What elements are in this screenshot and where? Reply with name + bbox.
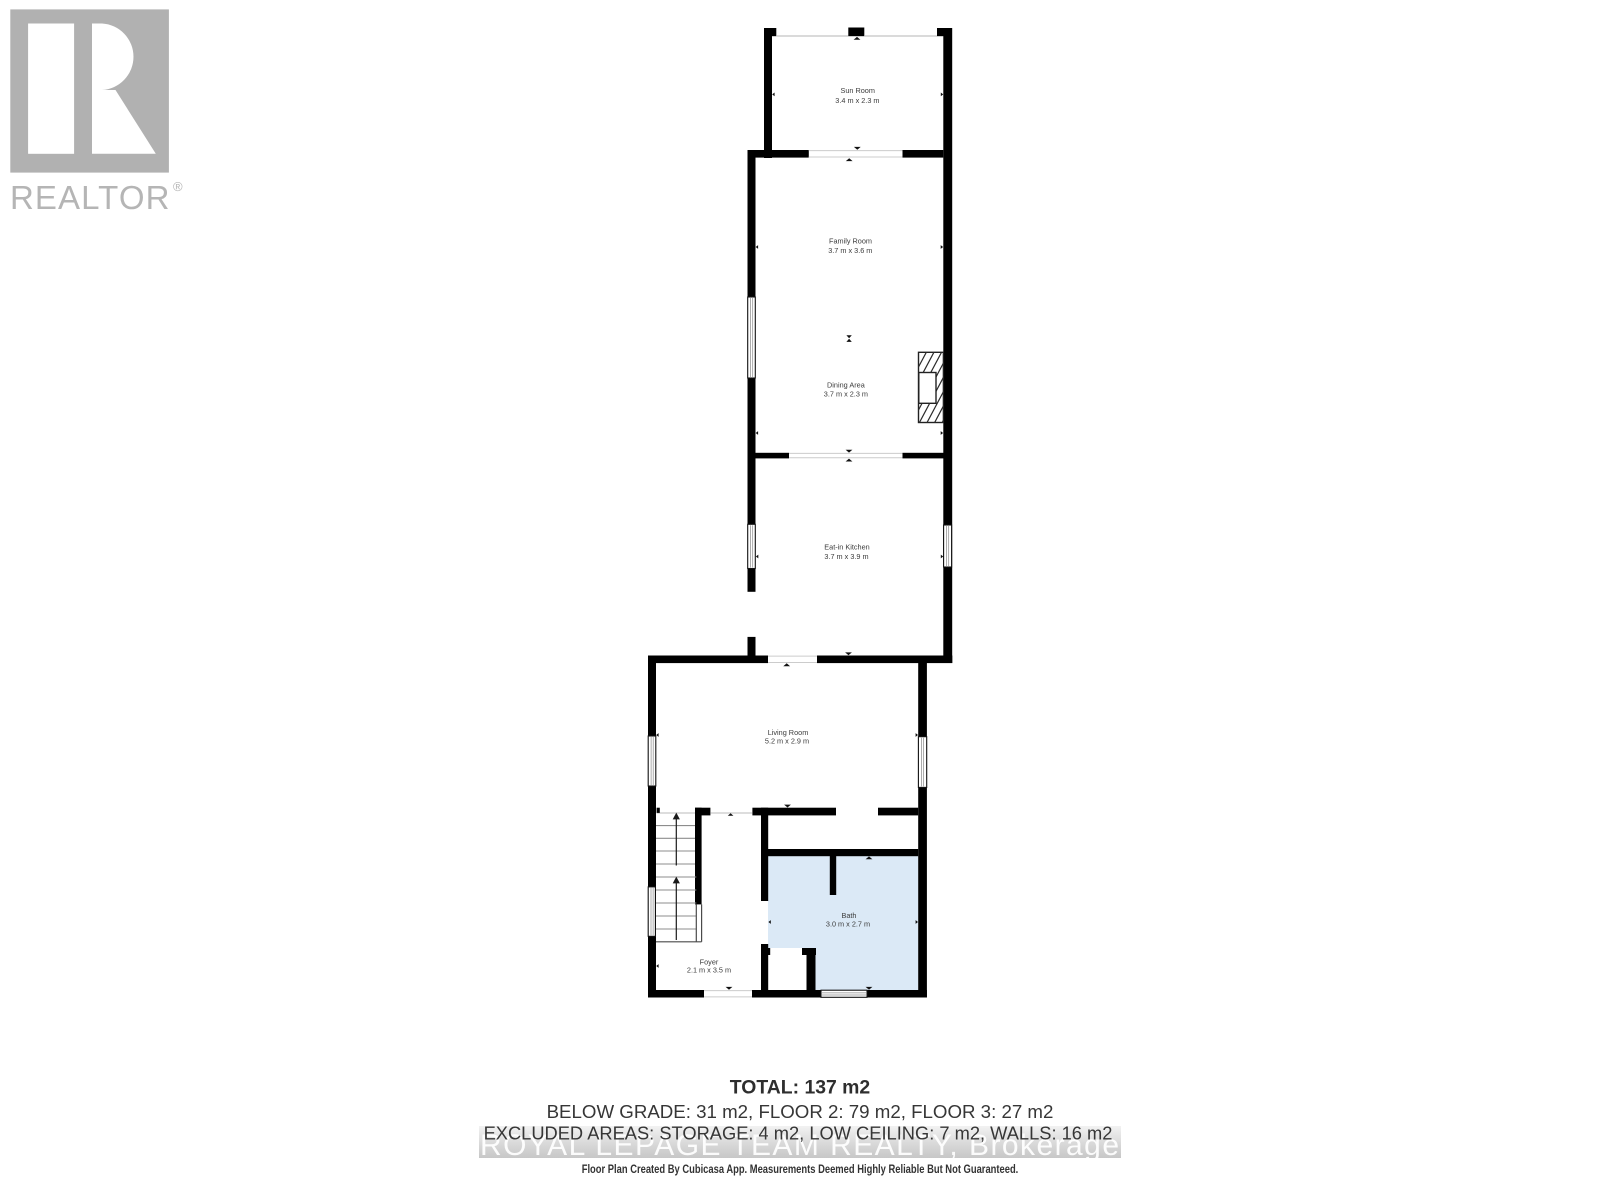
svg-text:2.1 m x 3.5 m: 2.1 m x 3.5 m	[687, 966, 731, 975]
svg-text:Sun Room: Sun Room	[840, 86, 874, 95]
svg-text:EXCLUDED AREAS: STORAGE: 4 m2,: EXCLUDED AREAS: STORAGE: 4 m2, LOW CEILI…	[484, 1122, 1113, 1143]
svg-text:Dining Area: Dining Area	[827, 380, 866, 389]
svg-text:BELOW GRADE: 31 m2, FLOOR 2: 7: BELOW GRADE: 31 m2, FLOOR 2: 79 m2, FLOO…	[547, 1101, 1054, 1122]
svg-text:TOTAL: 137 m2: TOTAL: 137 m2	[730, 1077, 870, 1099]
svg-text:REALTOR: REALTOR	[10, 179, 171, 216]
svg-text:3.0 m x 2.7 m: 3.0 m x 2.7 m	[826, 920, 870, 929]
svg-text:3.4 m x 2.3 m: 3.4 m x 2.3 m	[835, 96, 879, 105]
svg-text:3.7 m x 2.3 m: 3.7 m x 2.3 m	[824, 389, 868, 398]
svg-text:®: ®	[173, 179, 183, 194]
svg-text:3.7 m x 3.9 m: 3.7 m x 3.9 m	[824, 552, 868, 561]
svg-text:3.7 m x 3.6 m: 3.7 m x 3.6 m	[828, 246, 872, 255]
svg-text:5.2 m x 2.9 m: 5.2 m x 2.9 m	[765, 737, 809, 746]
svg-text:Family Room: Family Room	[829, 236, 872, 245]
svg-text:Floor Plan Created By Cubicasa: Floor Plan Created By Cubicasa App. Meas…	[582, 1163, 1019, 1176]
svg-text:Eat-in Kitchen: Eat-in Kitchen	[824, 543, 869, 552]
